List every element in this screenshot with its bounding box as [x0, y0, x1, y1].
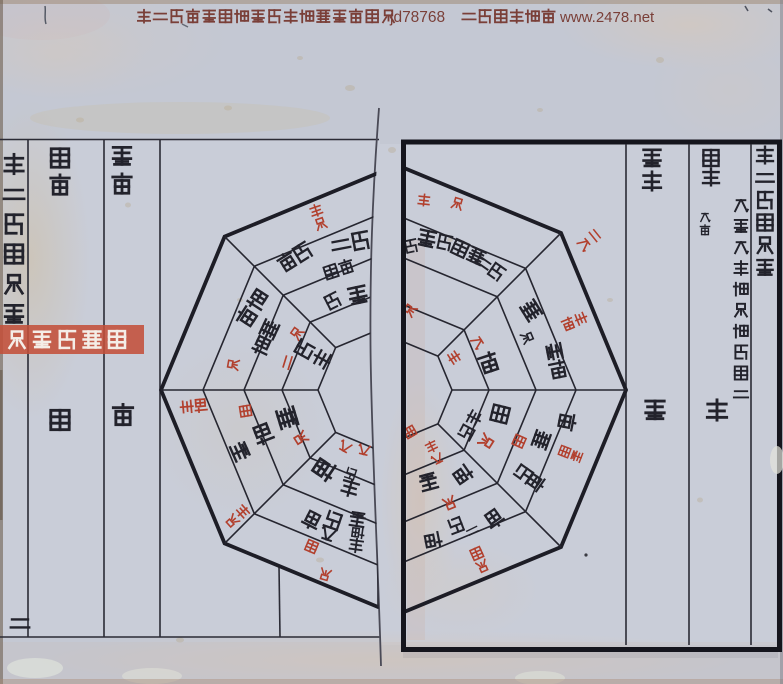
svg-text:www.2478.net: www.2478.net [559, 9, 655, 26]
svg-text:jd78768: jd78768 [389, 9, 445, 26]
